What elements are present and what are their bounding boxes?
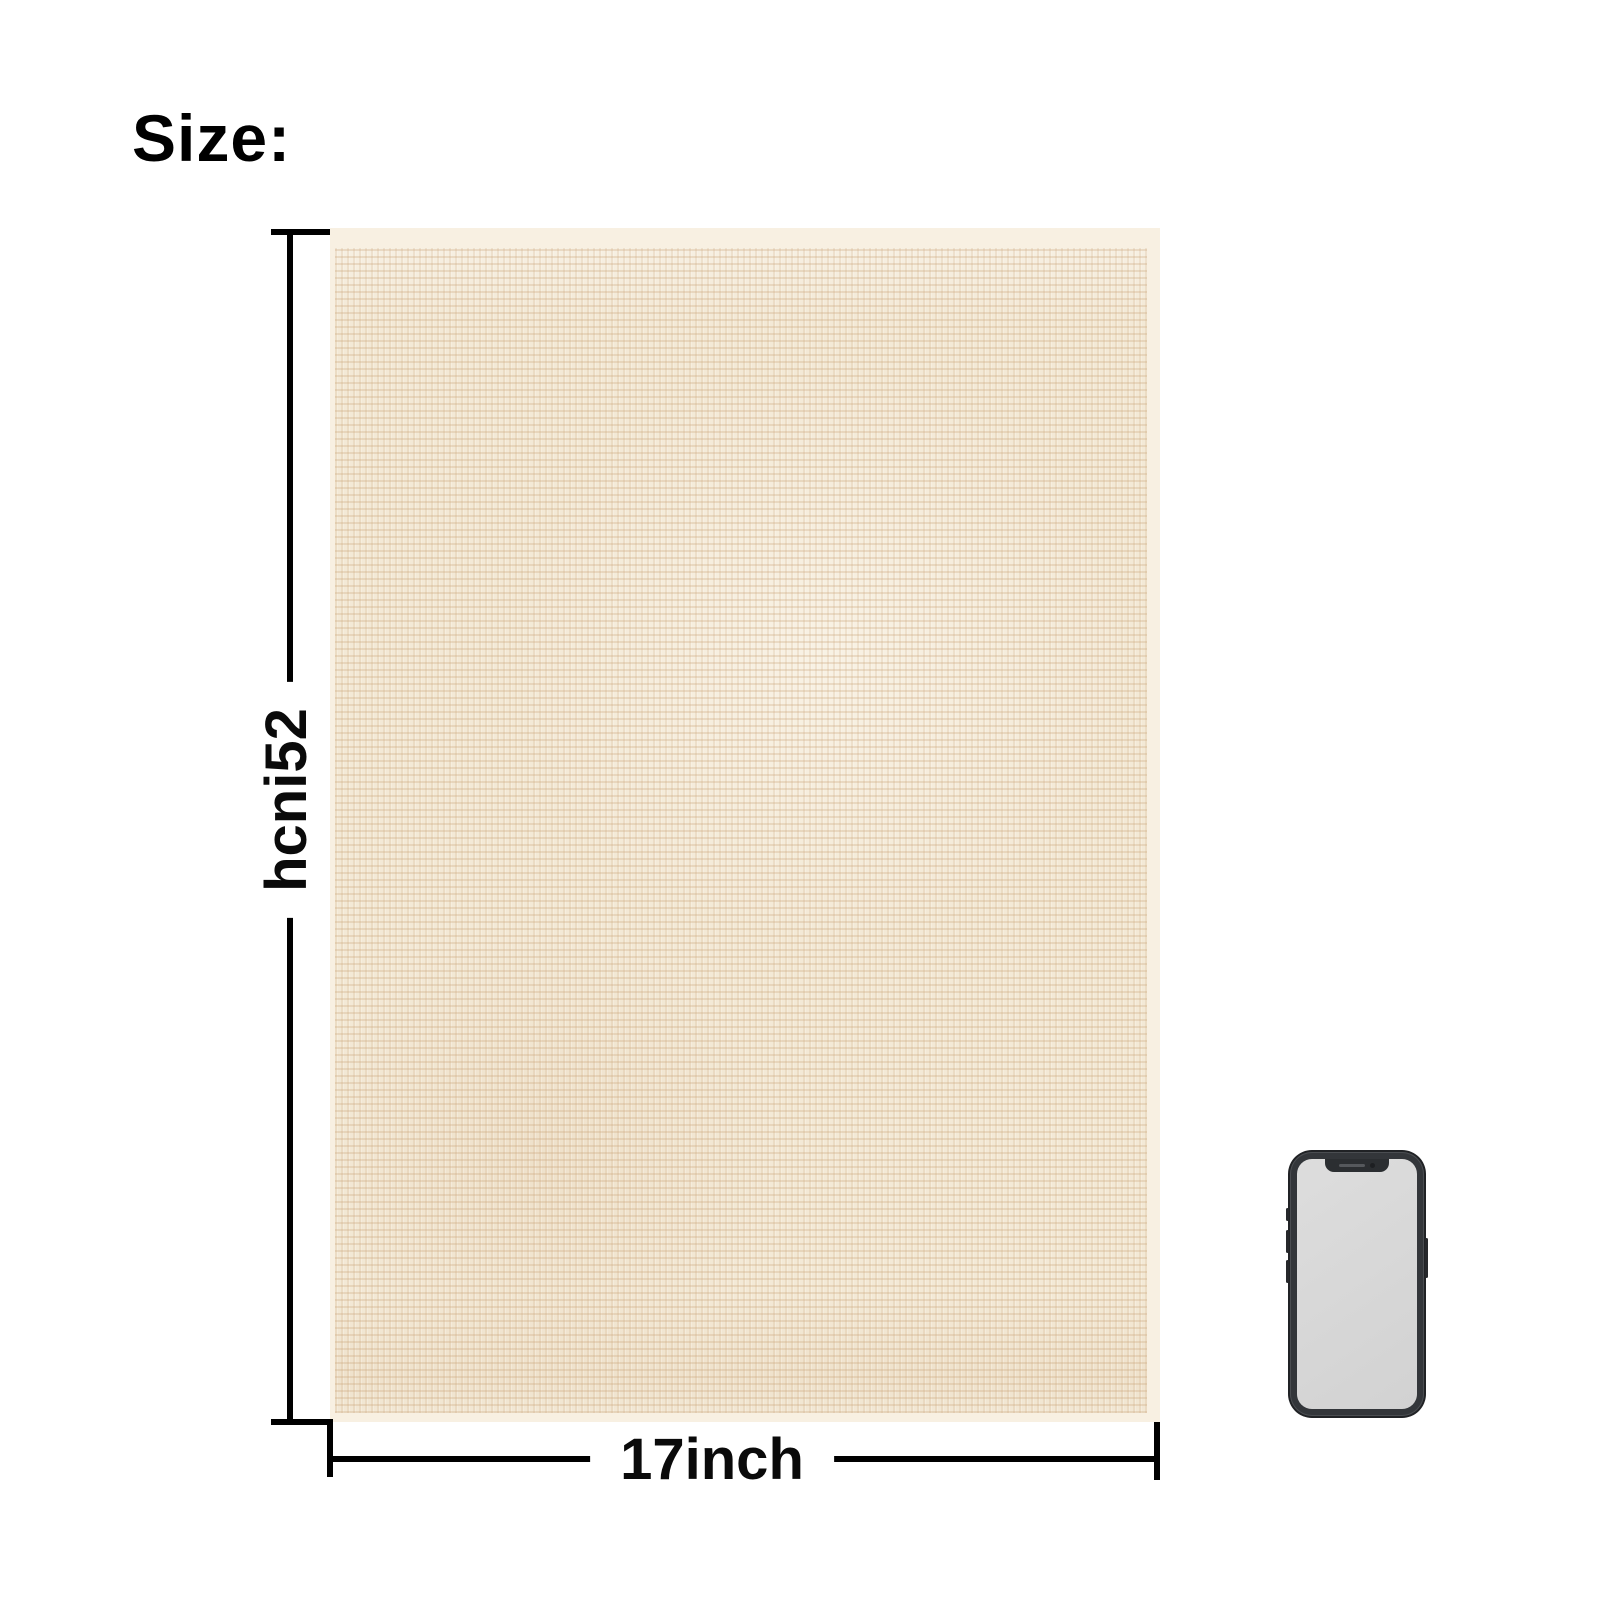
phone-volume-up-button	[1286, 1230, 1289, 1253]
phone-mute-button	[1286, 1208, 1289, 1221]
towel-image	[330, 228, 1160, 1422]
phone-power-button	[1425, 1238, 1428, 1278]
smartphone-illustration	[1290, 1152, 1424, 1416]
height-dimension-label: 25inch	[255, 682, 319, 918]
phone-screen	[1297, 1159, 1417, 1409]
height-dimension-cap-top	[271, 229, 330, 235]
width-dimension-cap-left	[327, 1419, 333, 1477]
phone-volume-down-button	[1286, 1260, 1289, 1283]
phone-camera-icon	[1370, 1163, 1375, 1168]
width-dimension-cap-right	[1154, 1422, 1160, 1480]
width-dimension-label: 17inch	[590, 1428, 834, 1492]
size-diagram: Size: 25inch 17inch	[0, 0, 1600, 1600]
phone-speaker-icon	[1339, 1164, 1365, 1167]
phone-notch	[1325, 1159, 1389, 1172]
size-heading: Size:	[132, 100, 291, 176]
towel-weave-texture	[335, 248, 1147, 1413]
height-dimension-cap-bottom	[271, 1419, 330, 1425]
